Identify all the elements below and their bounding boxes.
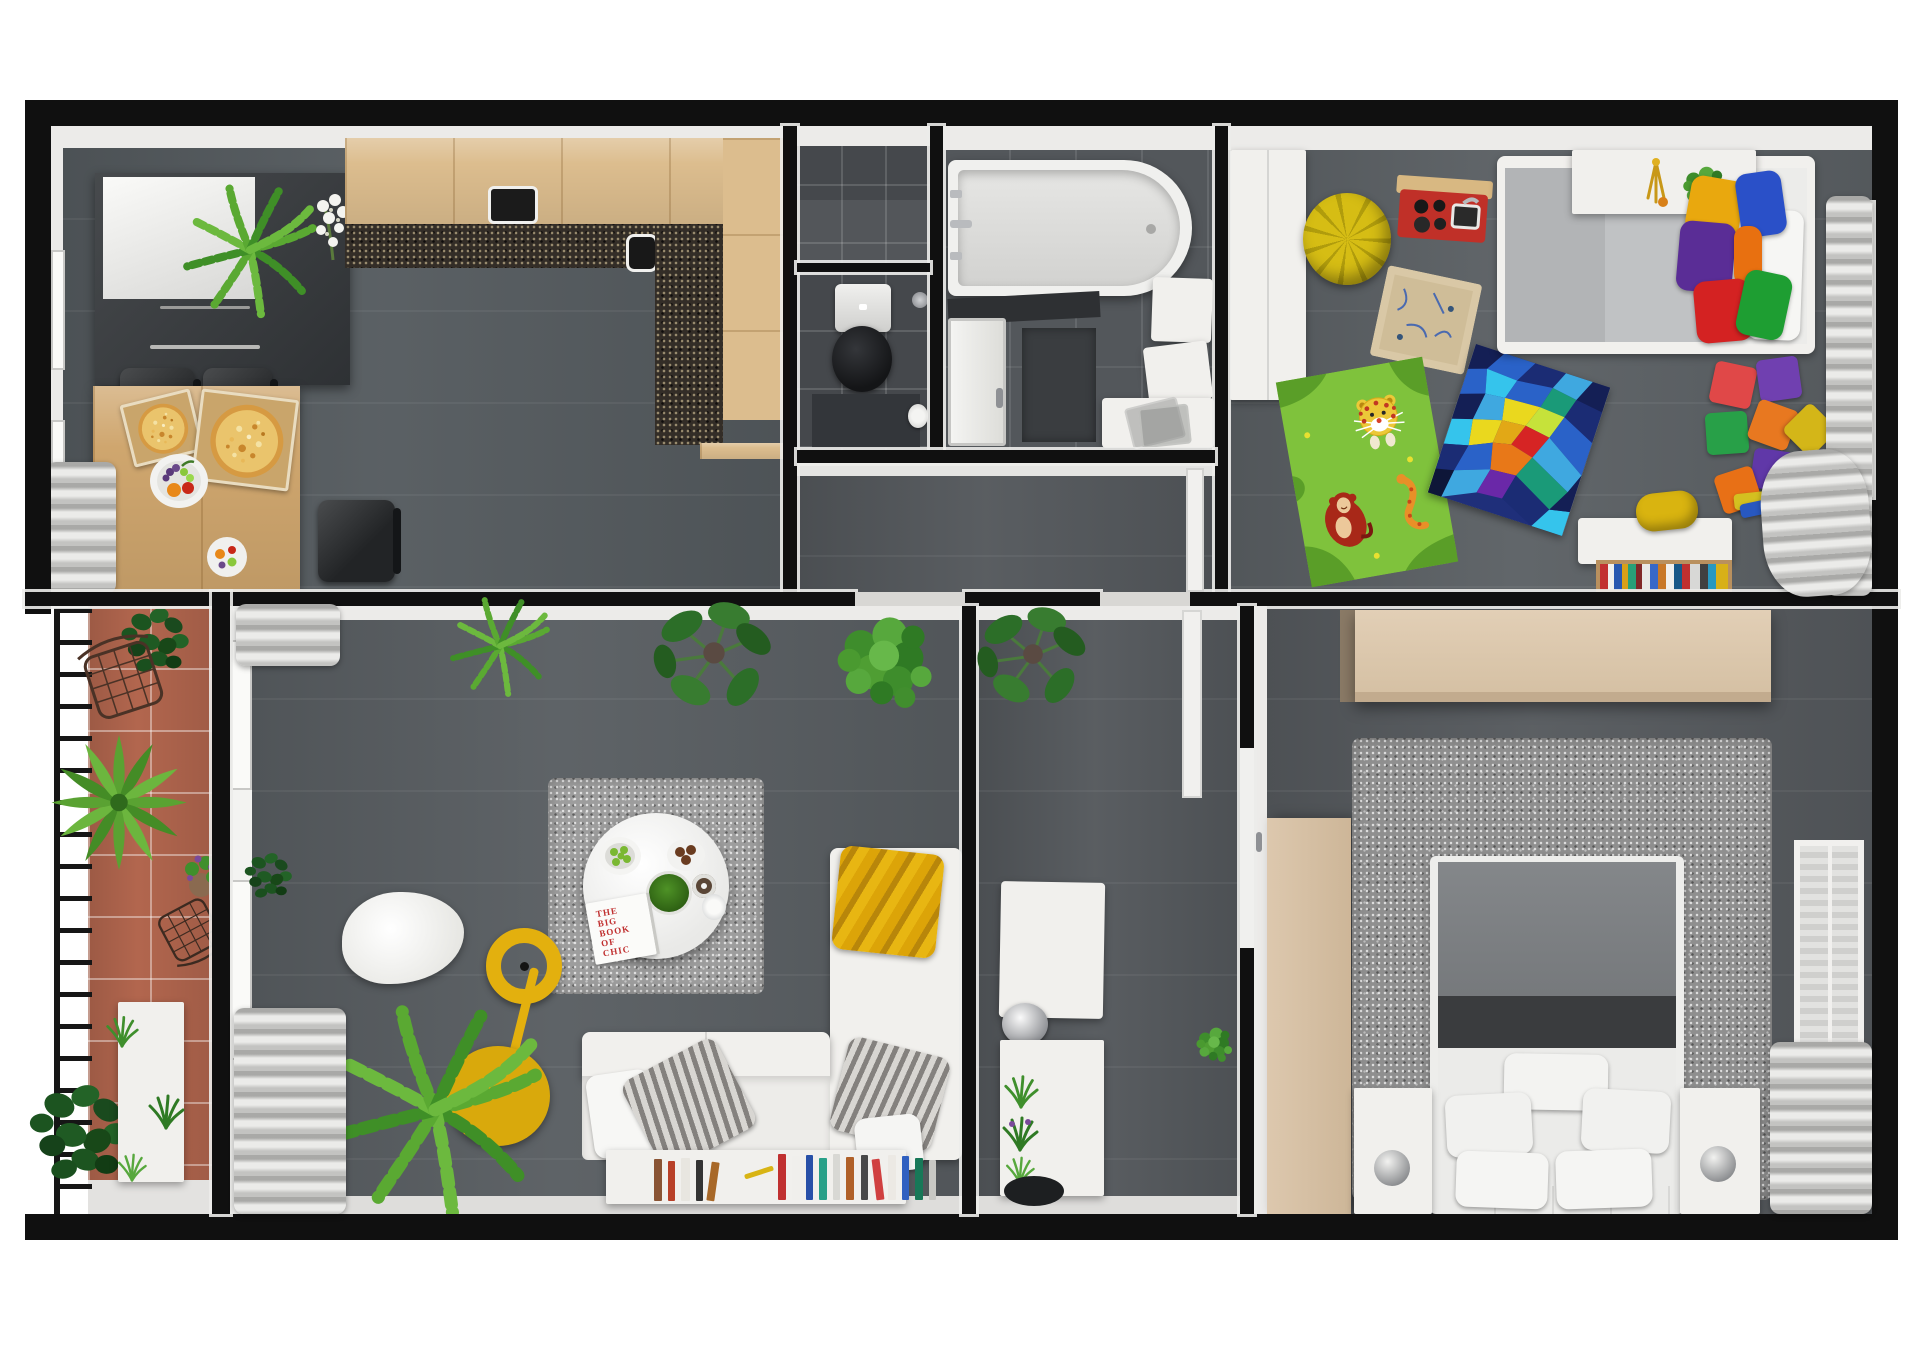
bath-faucet — [950, 190, 962, 198]
corridor-door-frame — [1186, 468, 1204, 592]
shelf-books-group — [654, 1158, 718, 1202]
fruit-plate — [206, 536, 248, 578]
bedroom-wardrobe-top — [1355, 610, 1771, 702]
book-spine — [888, 1155, 896, 1200]
book-spine — [668, 1161, 675, 1201]
cooktop — [488, 186, 538, 224]
wall-kitchen-wc — [783, 126, 797, 592]
book: THE BIG BOOK OF CHIC — [585, 893, 657, 965]
decor-sphere — [1700, 1146, 1736, 1182]
kids-wardrobe-seam — [1267, 150, 1269, 400]
bed-gray-top — [1438, 862, 1676, 996]
console-plant — [1000, 1110, 1040, 1154]
entry-plant-monstera — [974, 588, 1092, 724]
kitchen-counter-end-cap — [700, 443, 783, 459]
book-spine — [915, 1158, 923, 1200]
gold-desk-lamp — [1636, 154, 1676, 210]
book-spine — [929, 1160, 936, 1200]
foam-block-purple — [1755, 355, 1802, 402]
bath-faucet — [950, 252, 962, 260]
book-spine — [792, 1156, 800, 1200]
doormat — [1004, 1176, 1064, 1206]
bathtub-drain — [1146, 224, 1156, 234]
niche-top-wall-face — [797, 126, 930, 146]
planter-plant — [116, 1146, 148, 1186]
fridge-handle — [150, 345, 260, 349]
page: { "scene": { "description": "3D rendered… — [0, 0, 1920, 1357]
bathroom-door-handle — [996, 388, 1003, 408]
foam-block-red — [1708, 360, 1758, 410]
toilet-flush-button — [859, 304, 867, 310]
bath-wall-cabinet — [1143, 340, 1214, 405]
book-spine — [846, 1157, 854, 1200]
kitchen-sink — [626, 234, 658, 272]
kids-corner-curtain — [1757, 446, 1875, 599]
living-plant-bush — [822, 600, 946, 716]
window-mullion — [1828, 846, 1832, 1060]
corridor-top-wall-face — [797, 463, 1215, 476]
book-spine — [861, 1155, 868, 1200]
shelf-books-group — [778, 1154, 937, 1202]
bedroom-window — [1794, 840, 1864, 1066]
kitchen-curtain — [46, 462, 116, 594]
kids-top-wall-face — [1228, 126, 1872, 150]
entry-small-plant — [1192, 1018, 1236, 1068]
planter-plant — [104, 1008, 140, 1052]
bedroom-side-wardrobe — [1267, 818, 1351, 1214]
book-spine — [696, 1160, 703, 1201]
kitchen-counter-L-edge — [655, 224, 723, 445]
door-threshold — [1100, 592, 1190, 606]
bedroom-curtain — [1770, 1042, 1872, 1214]
wall-balcony-living — [212, 592, 230, 1214]
shower-head — [912, 292, 928, 308]
outer-wall-top — [25, 100, 1898, 126]
living-windowsill-plant — [242, 842, 298, 906]
planter-plant — [146, 1086, 186, 1134]
bed-pillow — [1580, 1088, 1671, 1155]
wall-wc-bath — [930, 126, 943, 450]
living-curtain-top — [236, 604, 340, 666]
book-rack — [1596, 560, 1732, 594]
chocolate-plate — [666, 838, 706, 872]
glass — [702, 894, 726, 920]
bath-mat — [1022, 328, 1096, 442]
book-spine — [681, 1158, 690, 1201]
bedroom-door-handle — [1256, 832, 1262, 852]
kids-wardrobe — [1230, 150, 1306, 400]
toilet-seat — [832, 326, 892, 392]
salad-bowl — [598, 836, 642, 876]
wardrobe-front-lip — [1355, 692, 1771, 702]
toy-play-kitchen — [1391, 173, 1496, 250]
bed-pillow — [1555, 1148, 1653, 1209]
moss-bowl — [646, 871, 692, 915]
wall-bath-kids — [1215, 126, 1228, 592]
console-plant — [1002, 1070, 1040, 1110]
corridor-floor — [797, 463, 1215, 592]
living-curtain-bottom — [234, 1008, 346, 1214]
bedroom-door — [1240, 748, 1254, 948]
bedroom-left-wall-face — [1254, 606, 1267, 1214]
dining-chair — [318, 500, 395, 582]
book-spine — [833, 1154, 840, 1200]
foam-block-green — [1705, 411, 1750, 456]
book-spine — [778, 1154, 786, 1200]
floor-lamp-dot — [520, 962, 529, 971]
book-spine — [819, 1158, 827, 1200]
storage-niche-light — [797, 200, 930, 263]
bed-pillow — [1455, 1150, 1549, 1209]
bath-faucet-spout — [950, 220, 972, 228]
book-spine — [902, 1156, 909, 1200]
leaning-glass-panel — [1138, 403, 1192, 448]
toilet-paper-holder — [908, 404, 928, 428]
bathroom-door — [948, 318, 1006, 446]
living-plant-monstera — [650, 582, 778, 728]
yellow-throw — [831, 845, 945, 959]
book-spine — [806, 1155, 813, 1200]
pizza — [205, 399, 290, 484]
kitchen-upper-cabinets — [345, 138, 785, 224]
bed-dark-runner — [1438, 996, 1676, 1048]
book-title: THE BIG BOOK OF CHIC — [585, 893, 656, 960]
bed-pillow — [1444, 1092, 1533, 1158]
pizza — [132, 397, 195, 460]
living-plant-palm — [444, 586, 556, 706]
bathroom-top-wall-face — [943, 126, 1215, 150]
book-spine — [707, 1162, 720, 1202]
metal-bowl — [1002, 1003, 1048, 1045]
entry-open-door — [1182, 610, 1202, 798]
entry-wall-cabinet — [999, 881, 1105, 1019]
wc-floor-mat — [812, 394, 920, 448]
book-spine — [654, 1159, 662, 1201]
outer-wall-bottom — [25, 1214, 1898, 1240]
bath-wall-cabinet — [1151, 277, 1213, 343]
wall-mid-right — [1190, 592, 1898, 606]
kitchen-counter-L-return — [723, 138, 783, 420]
fruit-bowl — [148, 452, 210, 510]
kitchen-window-frame — [51, 250, 65, 370]
toy-box — [1369, 265, 1482, 375]
outer-wall-left — [25, 100, 51, 614]
wall-niche-wc — [797, 263, 930, 272]
decor-sphere — [1374, 1150, 1410, 1186]
book-spine — [871, 1159, 884, 1201]
bean-bag — [1303, 193, 1391, 285]
wall-corridor-top — [797, 450, 1215, 463]
